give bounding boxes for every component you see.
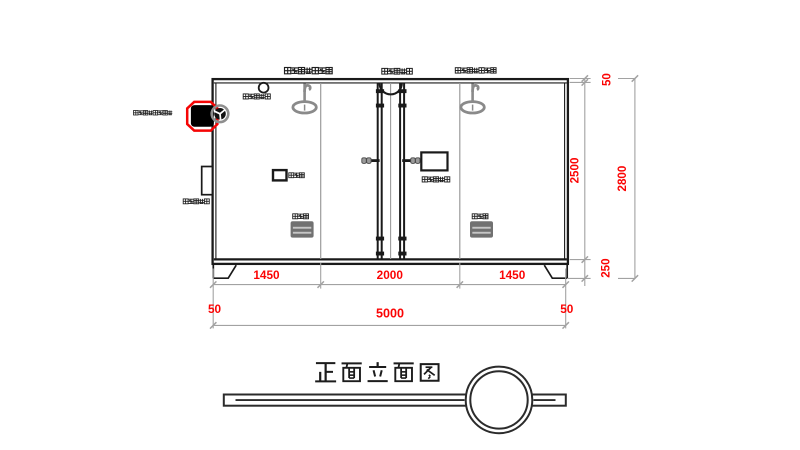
svg-text:50: 50	[560, 302, 574, 316]
svg-text:2800: 2800	[616, 166, 629, 192]
svg-text:50: 50	[601, 73, 614, 86]
svg-text:50: 50	[208, 302, 222, 316]
svg-text:1450: 1450	[499, 268, 526, 282]
svg-text:250: 250	[600, 258, 613, 277]
svg-text:2000: 2000	[377, 268, 404, 282]
svg-text:2500: 2500	[568, 158, 581, 184]
svg-text:1450: 1450	[253, 268, 280, 282]
svg-text:5000: 5000	[376, 307, 404, 321]
